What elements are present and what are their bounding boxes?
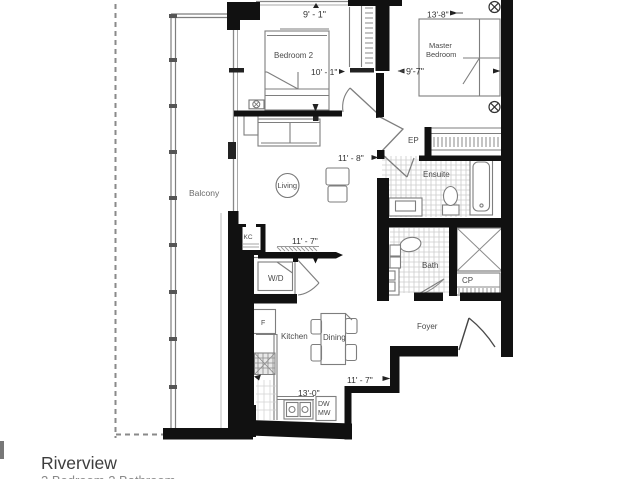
svg-text:Dining: Dining bbox=[323, 333, 346, 342]
svg-text:9' - 1": 9' - 1" bbox=[303, 10, 326, 20]
svg-text:13'-8": 13'-8" bbox=[427, 10, 449, 20]
svg-text:Living: Living bbox=[278, 181, 298, 190]
svg-text:2 Bedroom 2 Bathroom: 2 Bedroom 2 Bathroom bbox=[41, 473, 175, 479]
svg-text:11' - 8": 11' - 8" bbox=[338, 153, 364, 163]
svg-text:10' - 1": 10' - 1" bbox=[311, 67, 337, 77]
svg-text:Ensuite: Ensuite bbox=[423, 170, 450, 179]
svg-text:CP: CP bbox=[462, 276, 473, 285]
svg-text:F: F bbox=[261, 320, 265, 327]
svg-text:13'-0": 13'-0" bbox=[298, 388, 320, 398]
svg-text:11' - 7": 11' - 7" bbox=[347, 375, 373, 385]
svg-text:Riverview: Riverview bbox=[41, 453, 117, 473]
svg-text:Balcony: Balcony bbox=[189, 188, 220, 198]
svg-text:W/D: W/D bbox=[268, 274, 284, 283]
svg-text:DW: DW bbox=[318, 401, 330, 408]
svg-text:Kitchen: Kitchen bbox=[281, 332, 308, 341]
svg-text:KC: KC bbox=[244, 234, 253, 241]
svg-text:EP: EP bbox=[408, 136, 419, 145]
svg-text:Bedroom: Bedroom bbox=[426, 50, 456, 59]
svg-text:Master: Master bbox=[429, 41, 452, 50]
svg-text:Bath: Bath bbox=[422, 261, 438, 270]
svg-text:Bedroom 2: Bedroom 2 bbox=[274, 51, 314, 60]
svg-text:Foyer: Foyer bbox=[417, 322, 438, 331]
svg-text:11' - 7": 11' - 7" bbox=[292, 236, 318, 246]
svg-text:9'-7": 9'-7" bbox=[406, 67, 424, 77]
svg-text:MW: MW bbox=[318, 410, 331, 417]
